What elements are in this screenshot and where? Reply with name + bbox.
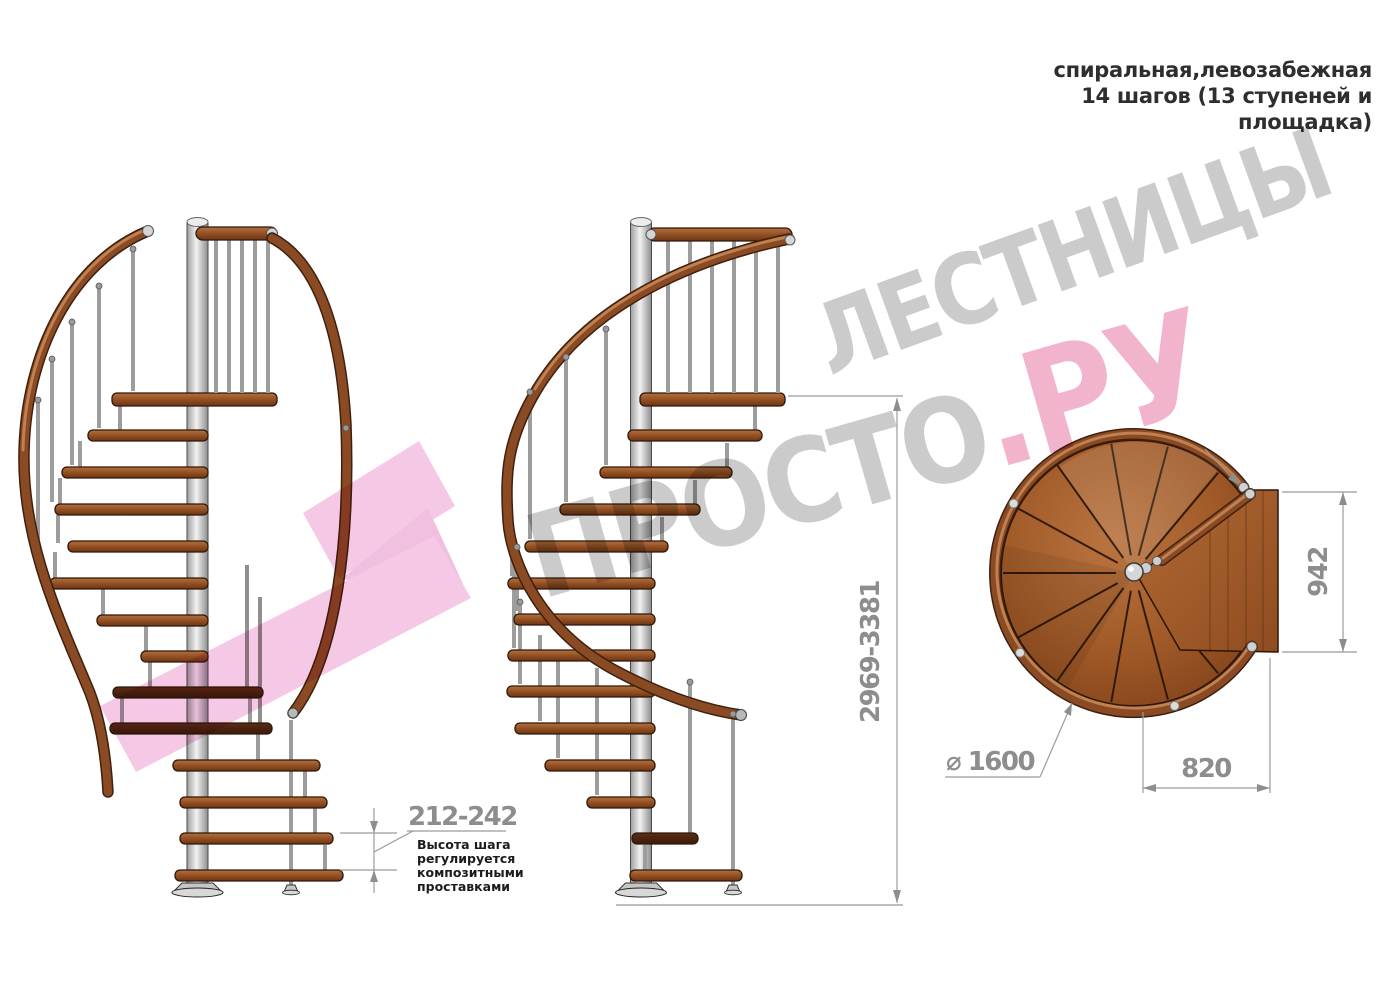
plan-center-pole xyxy=(1125,563,1143,581)
middle-elevation-view xyxy=(507,218,903,906)
step-note-line-1: Высота шага xyxy=(417,837,511,852)
plan-view xyxy=(995,433,1278,712)
drawing-canvas: спиральная,левозабежная 14 шагов (13 сту… xyxy=(0,0,1400,1000)
title-line-3: площадка) xyxy=(1054,110,1372,136)
left-elevation-view xyxy=(23,218,349,898)
step-height-value: 212-242 xyxy=(408,802,517,832)
middle-center-pole xyxy=(616,218,667,898)
step-note-line-4: проставками xyxy=(417,879,510,894)
plan-diameter-value: ⌀ 1600 xyxy=(946,747,1034,777)
dimension-plan-depth: 942 xyxy=(1282,492,1357,652)
dimension-step-height: 212-242 Высота шага регулируется компози… xyxy=(340,802,524,894)
step-note-line-2: регулируется xyxy=(417,851,515,866)
drawing-title: спиральная,левозабежная 14 шагов (13 сту… xyxy=(1054,58,1372,135)
total-height-value: 2969-3381 xyxy=(856,581,886,723)
title-line-1: спиральная,левозабежная xyxy=(1054,58,1372,84)
dimension-total-height: 2969-3381 xyxy=(788,396,903,903)
staircase-technical-drawing: 2969-3381 212-242 Высота шага регулирует… xyxy=(0,0,1400,1000)
plan-width-value: 820 xyxy=(1181,754,1231,784)
plan-depth-value: 942 xyxy=(1304,547,1334,597)
left-baluster-foot xyxy=(283,885,300,895)
middle-baluster-foot xyxy=(725,885,742,895)
title-line-2: 14 шагов (13 ступеней и xyxy=(1054,84,1372,110)
step-note-line-3: композитными xyxy=(417,865,524,880)
